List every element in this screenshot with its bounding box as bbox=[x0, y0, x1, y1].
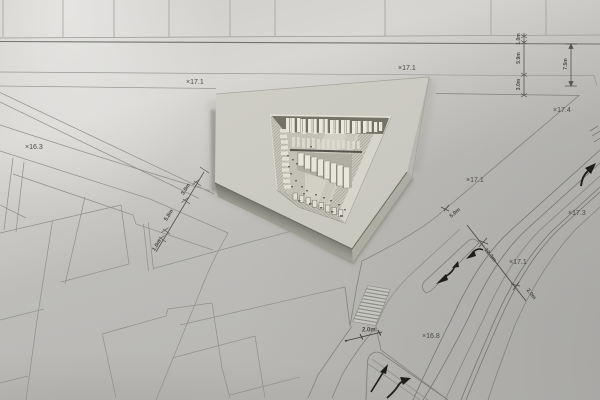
svg-text:5.9m: 5.9m bbox=[516, 52, 522, 64]
svg-text:×17.1: ×17.1 bbox=[466, 177, 484, 184]
svg-text:1.0m: 1.0m bbox=[516, 33, 522, 45]
svg-text:×16.3: ×16.3 bbox=[25, 144, 43, 151]
svg-text:×17.1: ×17.1 bbox=[398, 65, 416, 72]
svg-text:2.0m: 2.0m bbox=[362, 328, 376, 334]
svg-text:7.5m: 7.5m bbox=[563, 58, 569, 70]
svg-text:×17.4: ×17.4 bbox=[553, 107, 571, 114]
svg-text:×17.1: ×17.1 bbox=[509, 259, 527, 266]
svg-text:×16.8: ×16.8 bbox=[422, 333, 440, 340]
svg-text:×17.1: ×17.1 bbox=[186, 79, 204, 86]
svg-text:×17.3: ×17.3 bbox=[568, 210, 586, 217]
svg-text:3.0m: 3.0m bbox=[516, 78, 522, 90]
